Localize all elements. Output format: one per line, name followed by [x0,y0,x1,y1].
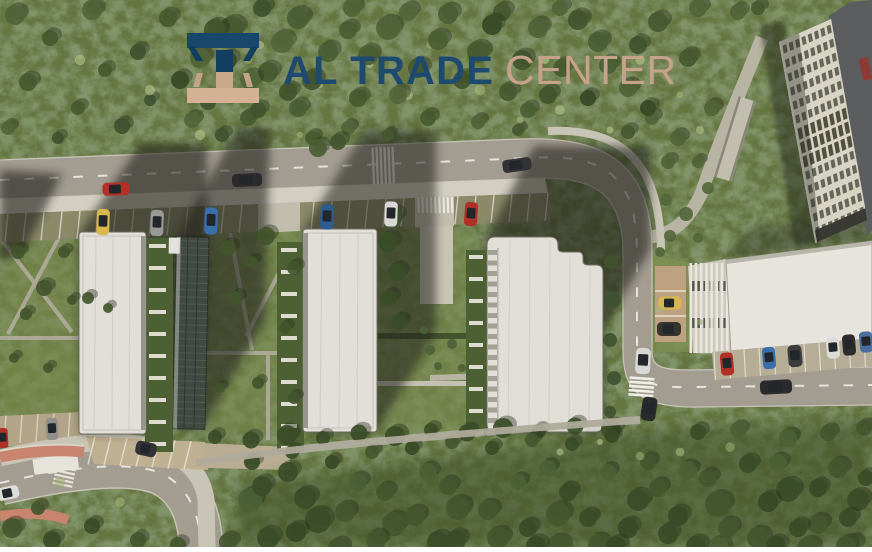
svg-text:AL TRADE: AL TRADE [283,49,494,93]
svg-text:CENTER: CENTER [505,47,677,93]
